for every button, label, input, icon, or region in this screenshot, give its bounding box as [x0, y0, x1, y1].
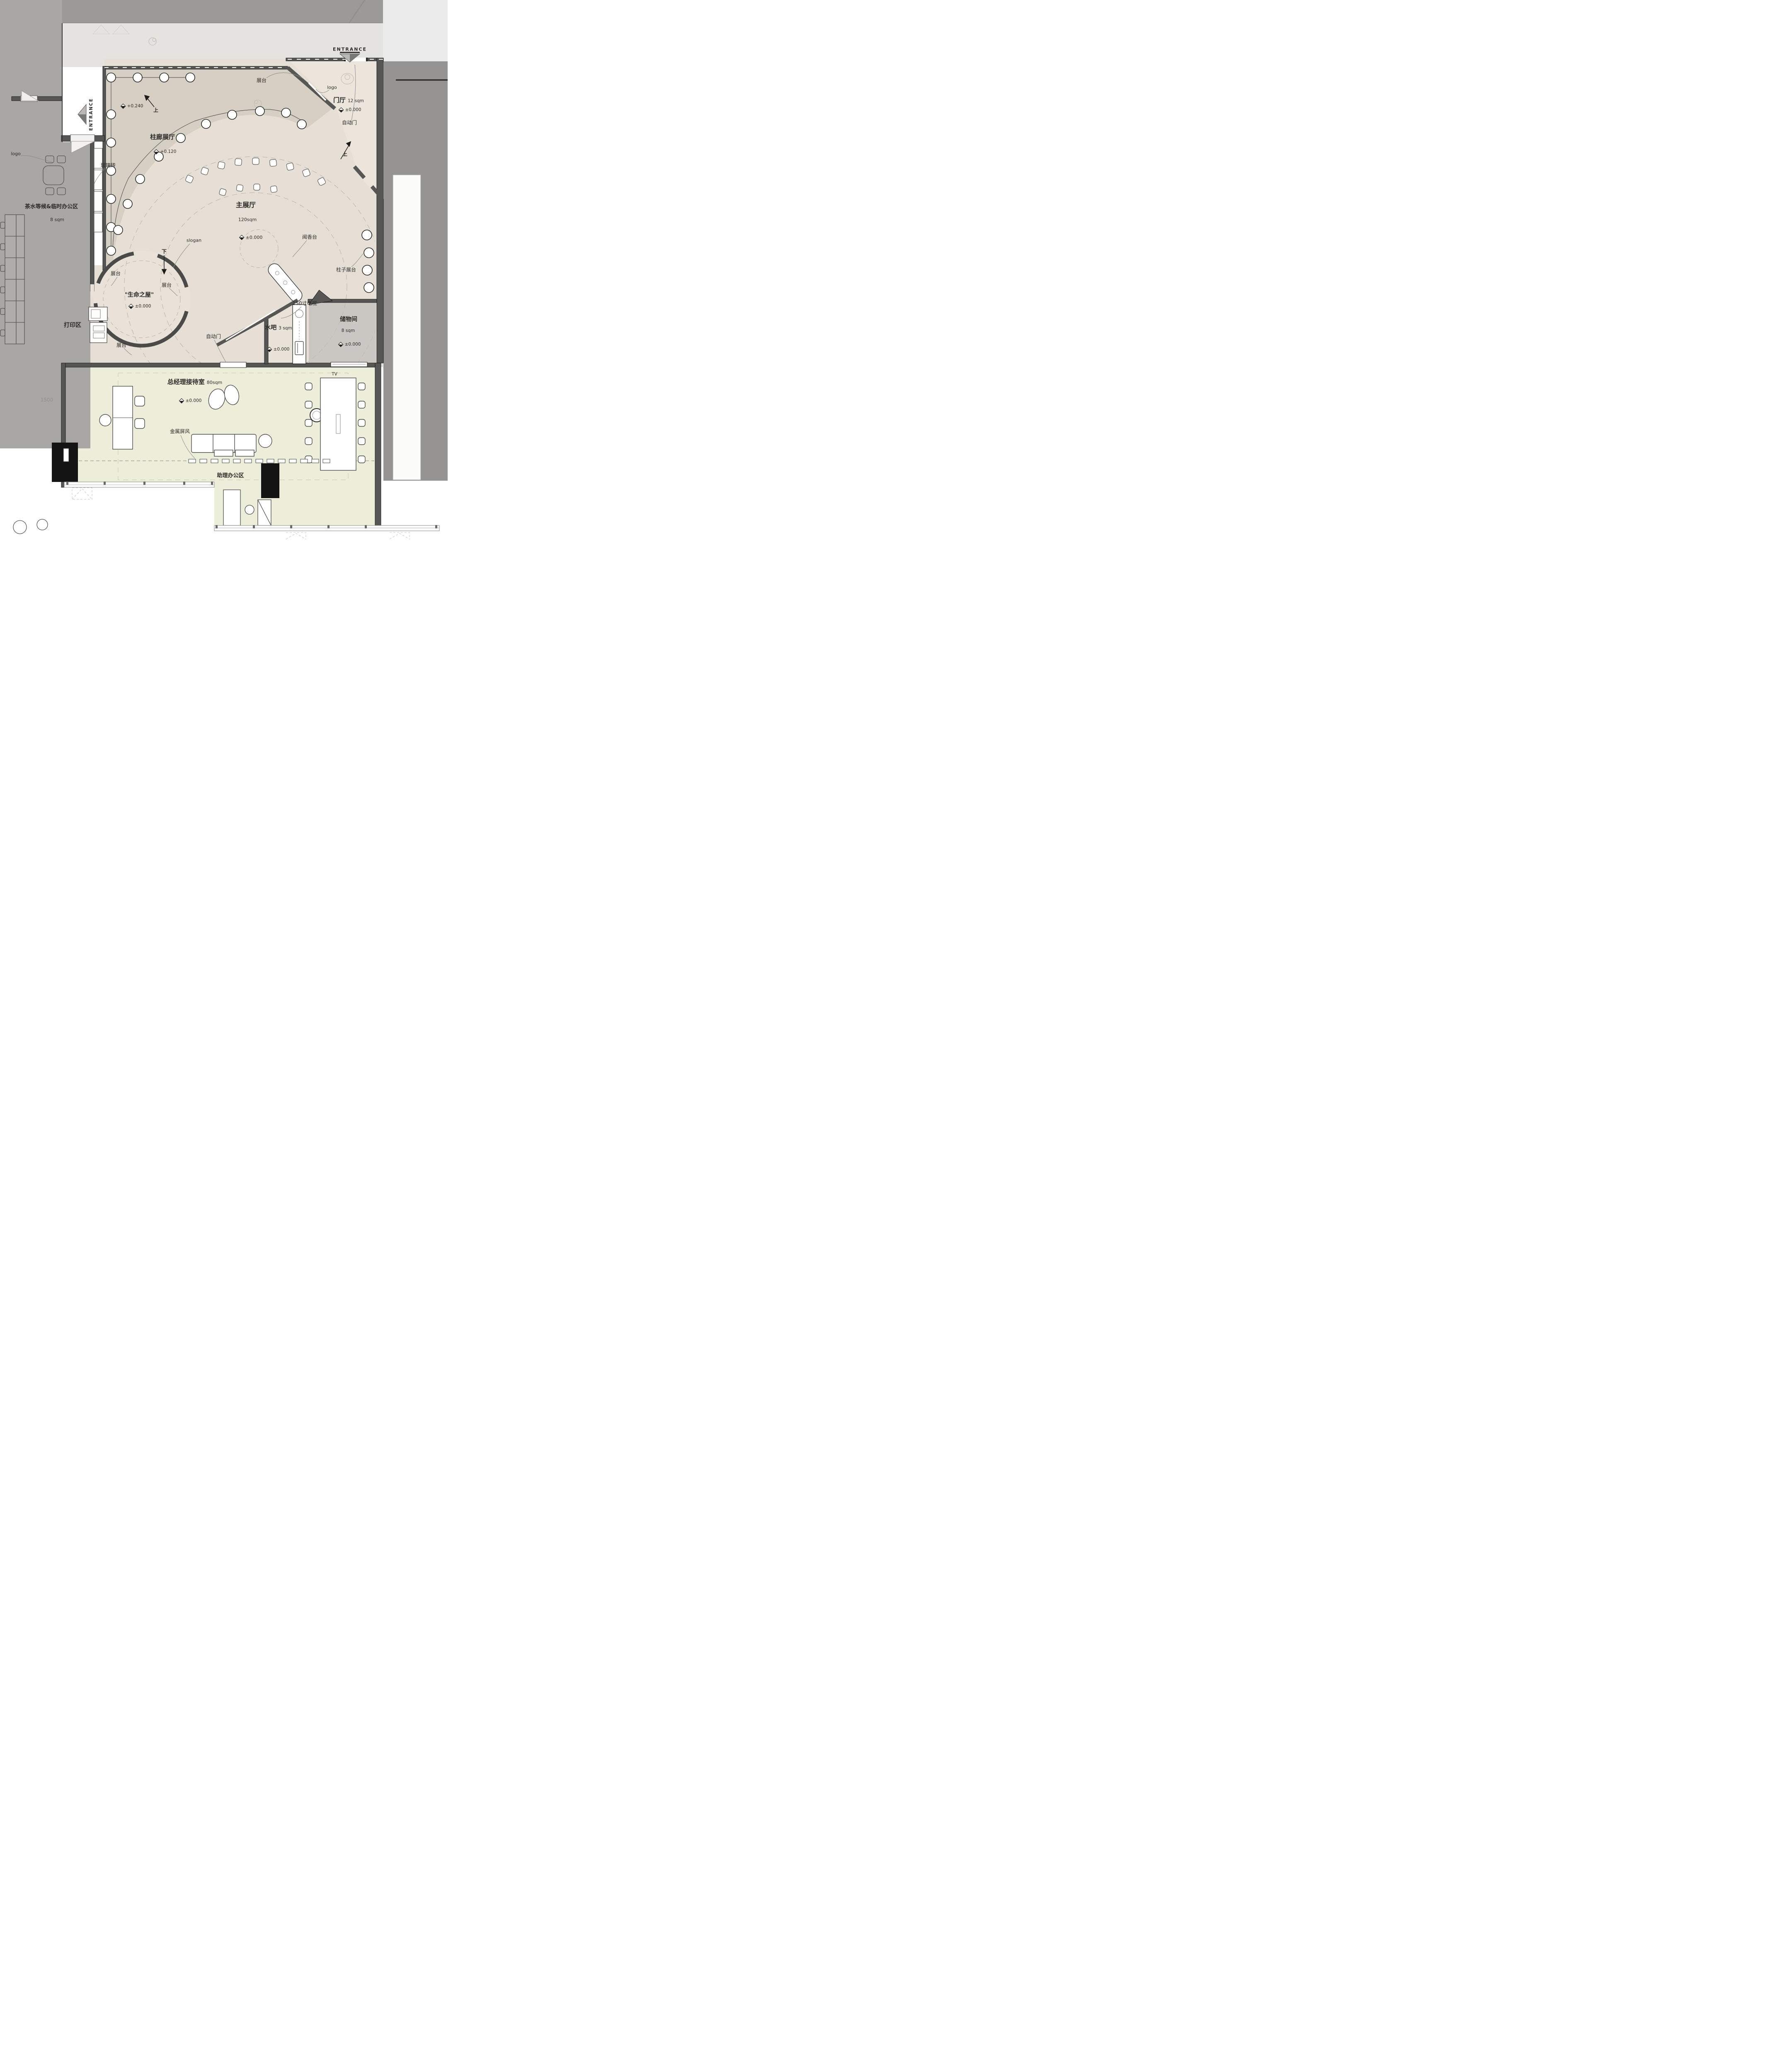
display-stand-label-bottom: 展台 — [116, 343, 126, 348]
tea-area-label: 茶水等候&临时办公区 — [25, 204, 78, 210]
level-marker-icon — [338, 342, 344, 347]
level-marker-icon — [239, 235, 245, 240]
assistant-desk — [223, 490, 240, 525]
level-marker-icon — [179, 398, 184, 404]
colonnade-level: +0.120 — [155, 150, 177, 154]
entrance-arrow-left — [78, 104, 86, 124]
display-stand-label-top: 展台 — [257, 78, 267, 83]
life-house-level: ±0.000 — [129, 304, 151, 309]
column-display-label: 柱子展台 — [336, 267, 356, 272]
tv-label: TV — [332, 372, 337, 377]
entrance-label-top: ENTRANCE — [333, 47, 367, 52]
up-label-foyer: 上 — [342, 152, 347, 157]
entrance-label-left: ENTRANCE — [89, 98, 94, 131]
water-bar-label: 水吧 3 sqm — [265, 325, 292, 331]
gm-reception-level: ±0.000 — [180, 399, 202, 403]
display-stand-label-right: 展台 — [162, 283, 172, 288]
water-bar-level: ±0.000 — [268, 347, 290, 352]
auto-door-label-bottom: 自动门 — [206, 334, 221, 339]
guest-chair — [135, 419, 145, 428]
auto-door-label-foyer: 自动门 — [342, 120, 357, 125]
floor-plan-canvas: ENTRANCE ENTRANCE logo logo 展台 门厅 12 sqm… — [0, 0, 448, 540]
level-marker-icon — [339, 107, 344, 113]
tv-150-label: 150寸电视 — [293, 301, 317, 306]
side-table — [259, 434, 272, 448]
floor-plan-drawing — [0, 0, 448, 540]
fragrance-table-label: 闻香台 — [302, 235, 317, 240]
storage-level: ±0.000 — [339, 342, 361, 347]
tea-area-area: 8 sqm — [50, 218, 64, 222]
gm-reception-label: 总经理接待室 80sqm — [167, 379, 222, 385]
main-hall-label: 主展厅 — [236, 202, 256, 208]
guest-chair — [135, 396, 145, 406]
level-marker-icon — [128, 304, 134, 309]
life-house-label: "生命之屋" — [125, 292, 154, 298]
colonnade-hall-label: 柱廊展厅 — [150, 134, 175, 140]
executive-chair — [99, 414, 111, 426]
logo-label-right: logo — [327, 85, 337, 90]
colonnade-upper-level: +0.240 — [121, 104, 143, 109]
level-marker-icon — [121, 104, 126, 109]
assistant-chair — [245, 505, 254, 514]
up-label-colonnade: 上 — [153, 108, 158, 113]
level-marker-icon — [154, 149, 159, 155]
assistant-office-label: 助理办公区 — [217, 473, 244, 479]
water-bar-appliances — [293, 305, 306, 364]
glass-brick-label: 玻璃砖 — [101, 163, 116, 168]
dimension-1500: 1500 — [41, 397, 53, 402]
main-hall-area: 120sqm — [238, 218, 257, 222]
fridge-icon — [295, 341, 303, 355]
logo-label-left: logo — [11, 152, 21, 156]
main-hall-level: ±0.000 — [240, 235, 263, 240]
storage-label: 储物间 — [340, 317, 357, 322]
down-label: 下 — [162, 249, 167, 254]
slogan-label: slogan — [187, 238, 201, 243]
foyer-label: 门厅 12 sqm — [333, 97, 364, 104]
level-marker-icon — [267, 347, 272, 352]
storage-area: 8 sqm — [342, 329, 355, 333]
foyer-level: ±0.000 — [339, 108, 361, 112]
metal-screen-label: 金属屏风 — [170, 429, 190, 434]
print-area-label: 打印区 — [64, 322, 81, 328]
display-stand-label-left: 展台 — [111, 271, 121, 276]
